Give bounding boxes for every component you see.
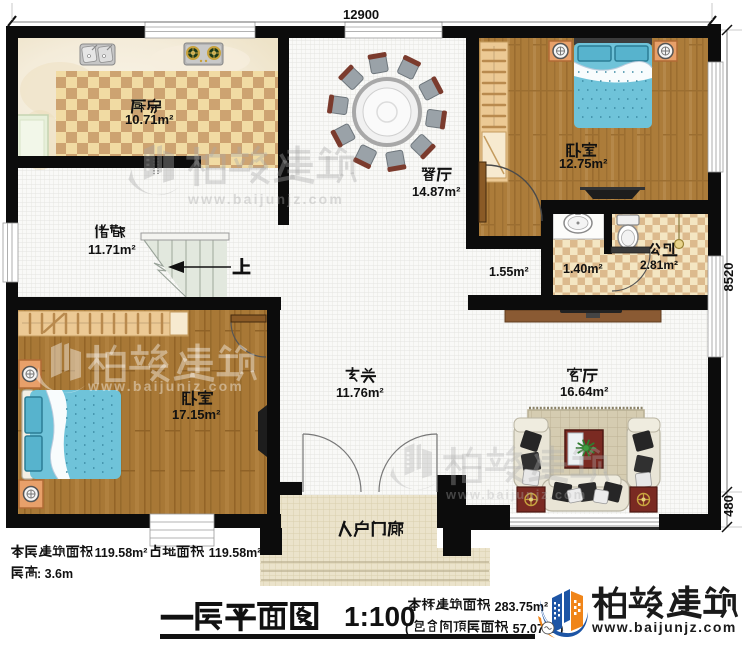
svg-text:11.71m²: 11.71m² [88, 242, 136, 257]
svg-text:16.64m²: 16.64m² [560, 384, 609, 399]
svg-text:: 119.58m²: : 119.58m² [87, 546, 147, 560]
svg-text:480: 480 [721, 495, 736, 517]
svg-text:: 3.6m: : 3.6m [37, 567, 73, 581]
svg-text:www.baijunjz.com: www.baijunjz.com [187, 191, 344, 207]
svg-text:1.40m²: 1.40m² [563, 262, 603, 276]
svg-text:8520: 8520 [721, 263, 736, 292]
svg-text:14.87m²: 14.87m² [412, 184, 461, 199]
svg-text:: 283.75m²: : 283.75m² [487, 600, 548, 614]
svg-text:11.76m²: 11.76m² [336, 385, 384, 400]
svg-text:www.baijunjz.com: www.baijunjz.com [591, 619, 737, 635]
svg-text:2.81m²: 2.81m² [640, 258, 678, 272]
svg-text:1.55m²: 1.55m² [489, 265, 529, 279]
svg-text:12900: 12900 [343, 7, 379, 22]
svg-text:12.75m²: 12.75m² [559, 156, 608, 171]
svg-text:10.71m²: 10.71m² [125, 112, 174, 127]
svg-text:www.baijunjz.com: www.baijunjz.com [87, 378, 244, 394]
svg-text:: 119.58m²: : 119.58m² [201, 546, 261, 560]
svg-text:17.15m²: 17.15m² [172, 407, 221, 422]
svg-text:www.baijunjz.com: www.baijunjz.com [445, 487, 587, 502]
